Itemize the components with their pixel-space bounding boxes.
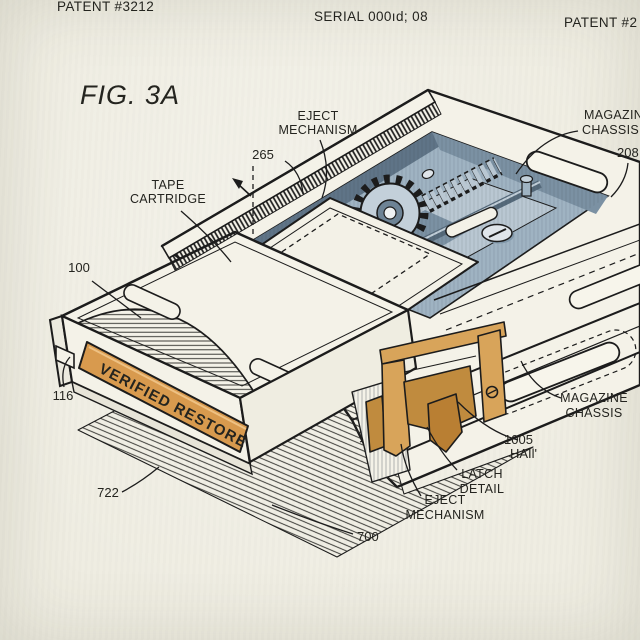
- callout-latch-detail-line2: DETAIL: [460, 482, 505, 496]
- callout-tape-cartridge-line1: TAPE: [152, 178, 185, 192]
- callout-magazine-chassis-right-line1: MAGAZINE: [560, 391, 628, 405]
- ref-208: 208: [617, 145, 639, 160]
- ref-100: 100: [68, 260, 90, 275]
- callout-magazine-chassis-right-line2: CHASSIS: [566, 406, 623, 420]
- patent-figure: VERIFIED RESTORE: [0, 0, 640, 640]
- callout-eject-mechanism-top-line2: MECHANISM: [278, 123, 357, 137]
- ref-1005: 1005: [504, 432, 533, 447]
- callout-eject-mechanism-bottom-line1: EJECT: [424, 493, 465, 507]
- callout-tape-cartridge-line2: CARTRIDGE: [130, 192, 206, 206]
- ref-265: 265: [252, 147, 274, 162]
- ref-116: 116: [53, 388, 74, 403]
- callout-eject-mechanism-top-line1: EJECT: [297, 109, 338, 123]
- header-center: SERIAL 000ıd; 08: [314, 9, 428, 24]
- figure-title: FIG. 3A: [80, 80, 180, 110]
- ref-700: 700: [357, 529, 379, 544]
- header-right: PATENT #2: [564, 15, 637, 30]
- callout-magazine-chassis-top-line1: MAGAZINE: [584, 108, 640, 122]
- callout-latch-detail-line1: LATCH: [461, 467, 503, 481]
- ref-1005-sub: HAIl': [510, 446, 537, 461]
- patent-sheet: VERIFIED RESTORE: [0, 0, 640, 640]
- header-left: PATENT #3212: [57, 0, 154, 14]
- callout-eject-mechanism-bottom-line2: MECHANISM: [405, 508, 484, 522]
- sheet-header: PATENT #3212 SERIAL 000ıd; 08 PATENT #2: [57, 0, 637, 30]
- bolt: [521, 176, 533, 197]
- ref-722: 722: [97, 485, 119, 500]
- callout-magazine-chassis-top-line2: CHASSIS: [582, 123, 639, 137]
